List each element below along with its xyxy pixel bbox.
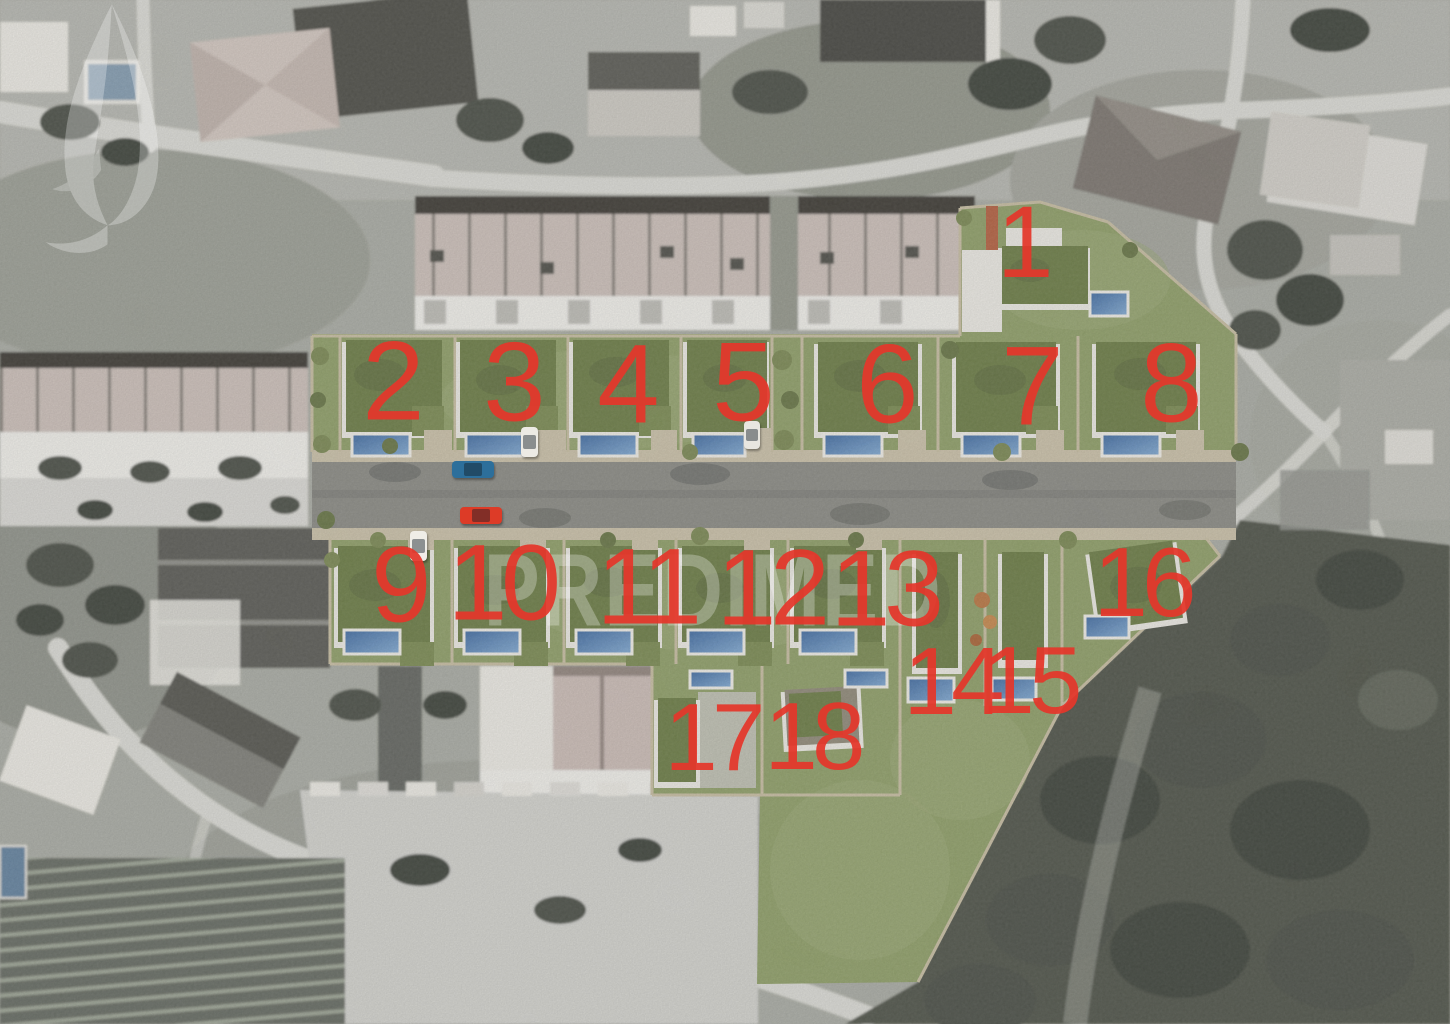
grain-light-overlay <box>0 0 1450 1024</box>
site-plan-image: PREDIMED 123456789101112131415161718 <box>0 0 1450 1024</box>
satellite-base-map <box>0 0 1450 1024</box>
